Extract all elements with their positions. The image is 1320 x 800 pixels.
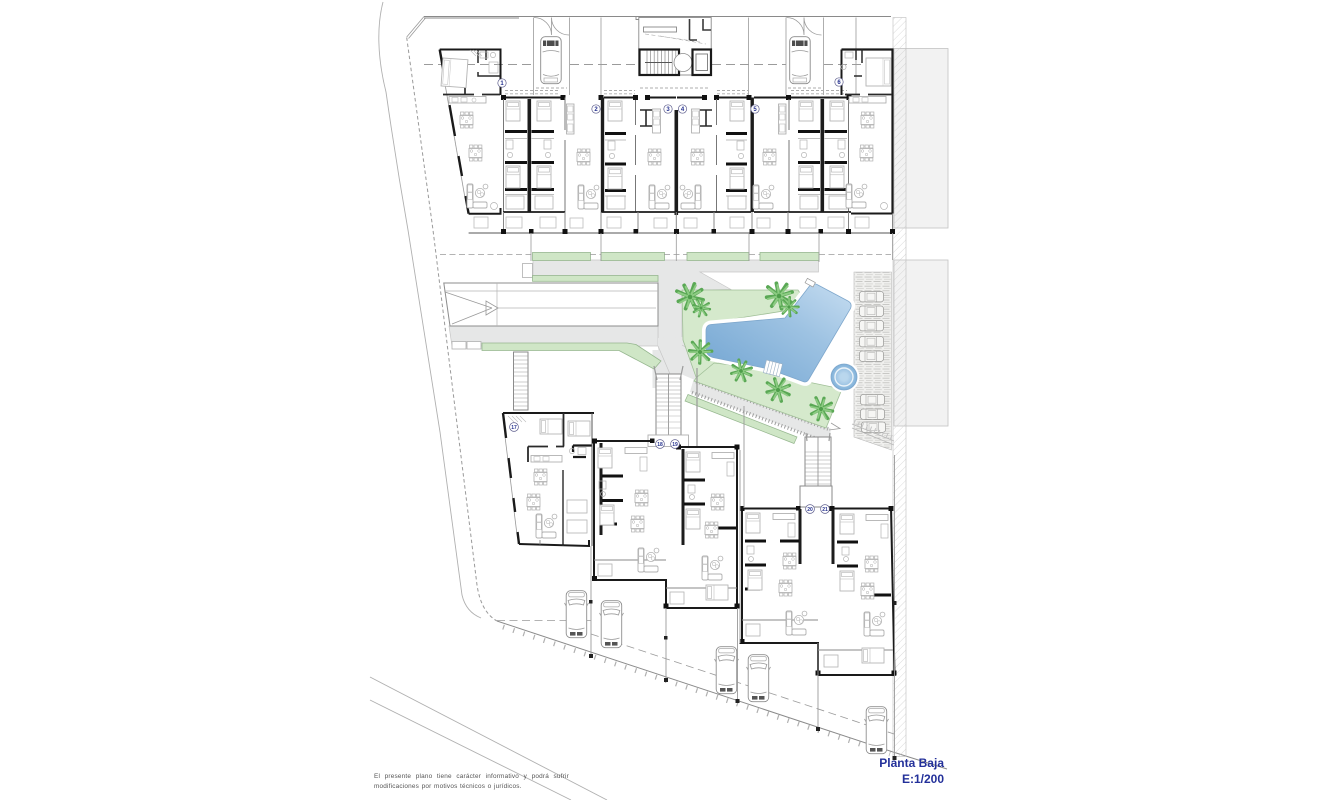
svg-text:E:1/200: E:1/200 [902,772,944,786]
svg-text:Planta Baja: Planta Baja [879,756,944,770]
svg-text:18: 18 [657,442,663,448]
svg-text:19: 19 [672,442,678,448]
svg-text:20: 20 [807,507,813,513]
svg-text:El presente plano tiene caráct: El presente plano tiene carácter informa… [374,773,570,780]
svg-text:17: 17 [511,425,517,431]
svg-text:21: 21 [822,507,828,513]
svg-text:modificaciones por motivos téc: modificaciones por motivos técnicos o ju… [374,783,522,790]
